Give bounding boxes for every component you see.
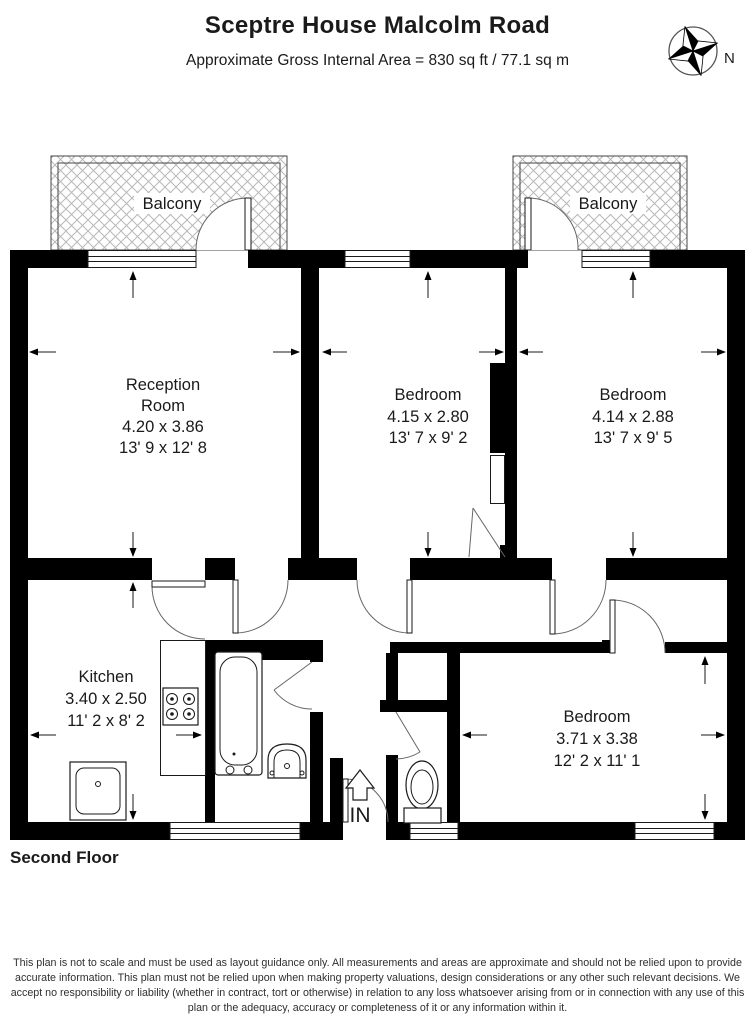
bathtub-icon <box>215 652 262 775</box>
right-balcony: Balcony <box>513 156 687 250</box>
bathroom-door-arc <box>274 690 312 709</box>
reception-door-leaf <box>233 580 238 633</box>
svg-text:4.20 x 3.86: 4.20 x 3.86 <box>122 418 204 436</box>
bedroom3-door-leaf <box>610 600 615 653</box>
svg-text:Reception: Reception <box>126 376 200 394</box>
svg-text:12' 2 x 11' 1: 12' 2 x 11' 1 <box>554 752 641 770</box>
compass-north-label: N <box>724 50 735 67</box>
svg-text:Room: Room <box>141 397 185 415</box>
disclaimer-text: This plan is not to scale and must be us… <box>8 956 747 1016</box>
svg-text:Kitchen: Kitchen <box>78 668 133 686</box>
entrance-marker: IN <box>346 770 374 827</box>
kitchen-sink-icon <box>70 762 126 820</box>
balcony-door-leaf <box>245 198 251 250</box>
floor-label: Second Floor <box>10 848 119 868</box>
kitchen-label: Kitchen 3.40 x 2.50 11' 2 x 8' 2 <box>65 668 147 730</box>
svg-text:3.71 x 3.38: 3.71 x 3.38 <box>556 730 638 748</box>
window <box>582 251 650 268</box>
bedroom1-label: Bedroom 4.15 x 2.80 13' 7 x 9' 2 <box>387 386 469 447</box>
washbasin-icon <box>268 744 306 778</box>
wc-door-leaf <box>396 712 420 752</box>
window <box>410 823 458 840</box>
svg-text:Bedroom: Bedroom <box>600 386 667 404</box>
floorplan-page: Sceptre House Malcolm Road Approximate G… <box>0 0 755 1024</box>
svg-text:13' 7 x 9' 5: 13' 7 x 9' 5 <box>594 429 673 447</box>
window <box>88 251 196 268</box>
svg-text:3.40 x 2.50: 3.40 x 2.50 <box>65 690 147 708</box>
bedroom2-door-arc <box>552 580 606 634</box>
svg-text:13' 7 x 9' 2: 13' 7 x 9' 2 <box>389 429 468 447</box>
entrance-label: IN <box>350 804 371 827</box>
reception-room-label: Reception Room 4.20 x 3.86 13' 9 x 12' 8 <box>119 376 207 457</box>
svg-text:11' 2 x 8' 2: 11' 2 x 8' 2 <box>67 712 145 730</box>
balcony-label: Balcony <box>579 195 638 213</box>
window <box>635 823 714 840</box>
kitchen-door-arc <box>152 586 205 639</box>
compass-icon: N <box>660 18 735 84</box>
room-labels: Reception Room 4.20 x 3.86 13' 9 x 12' 8… <box>65 376 674 770</box>
bedroom1-door-arc <box>357 580 410 633</box>
bathroom-door-leaf <box>274 662 312 690</box>
bedroom2-label: Bedroom 4.14 x 2.88 13' 7 x 9' 5 <box>592 386 674 447</box>
toilet-icon <box>404 761 441 823</box>
svg-text:4.15 x 2.80: 4.15 x 2.80 <box>387 408 469 426</box>
bedroom2-door-leaf <box>550 580 555 634</box>
bedroom3-label: Bedroom 3.71 x 3.38 12' 2 x 11' 1 <box>554 708 641 770</box>
balcony-label: Balcony <box>143 195 202 213</box>
window <box>170 823 300 840</box>
balcony-door-leaf <box>525 198 531 250</box>
kitchen-door-leaf <box>152 581 205 587</box>
window <box>345 251 410 268</box>
hob-icon <box>163 688 198 725</box>
bedroom3-door-arc <box>612 600 665 653</box>
reception-door-arc <box>235 580 288 633</box>
svg-text:4.14 x 2.88: 4.14 x 2.88 <box>592 408 674 426</box>
left-balcony: Balcony <box>51 156 287 250</box>
floor-plan: N Balcony Balcony <box>0 0 755 1024</box>
wc-door-arc <box>396 752 420 759</box>
svg-text:Bedroom: Bedroom <box>564 708 631 726</box>
in-arrow-icon <box>346 770 374 800</box>
bedroom1-door-leaf <box>407 580 412 633</box>
svg-text:13' 9 x 12' 8: 13' 9 x 12' 8 <box>119 439 207 457</box>
svg-text:Bedroom: Bedroom <box>395 386 462 404</box>
